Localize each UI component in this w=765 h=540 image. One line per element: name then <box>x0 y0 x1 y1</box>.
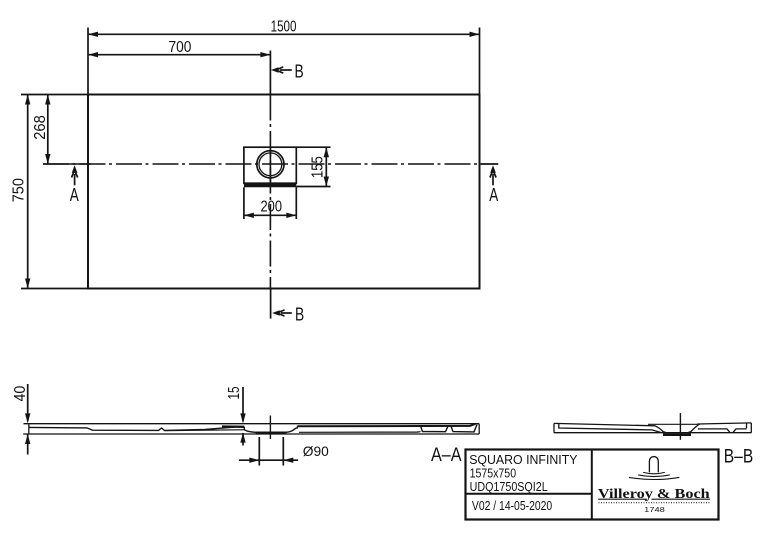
svg-text:A: A <box>70 184 79 205</box>
svg-text:700: 700 <box>169 39 192 56</box>
svg-text:750: 750 <box>11 178 28 203</box>
svg-text:A: A <box>489 184 498 205</box>
svg-text:200: 200 <box>261 199 283 216</box>
svg-text:B: B <box>295 60 304 81</box>
svg-text:15: 15 <box>226 387 243 400</box>
svg-text:V02 / 14-05-2020: V02 / 14-05-2020 <box>472 498 552 513</box>
svg-text:1748: 1748 <box>644 505 665 514</box>
svg-text:1500: 1500 <box>271 18 297 35</box>
svg-text:B–B: B–B <box>724 446 753 467</box>
svg-text:155: 155 <box>310 156 327 178</box>
svg-text:B: B <box>295 304 304 325</box>
svg-text:UDQ1750SQI2L: UDQ1750SQI2L <box>470 479 548 494</box>
svg-text:Villeroy & Boch: Villeroy & Boch <box>598 486 711 501</box>
svg-text:268: 268 <box>32 115 49 140</box>
svg-text:40: 40 <box>12 385 29 401</box>
svg-text:A–A: A–A <box>431 445 462 466</box>
svg-text:Ø90: Ø90 <box>303 443 329 459</box>
